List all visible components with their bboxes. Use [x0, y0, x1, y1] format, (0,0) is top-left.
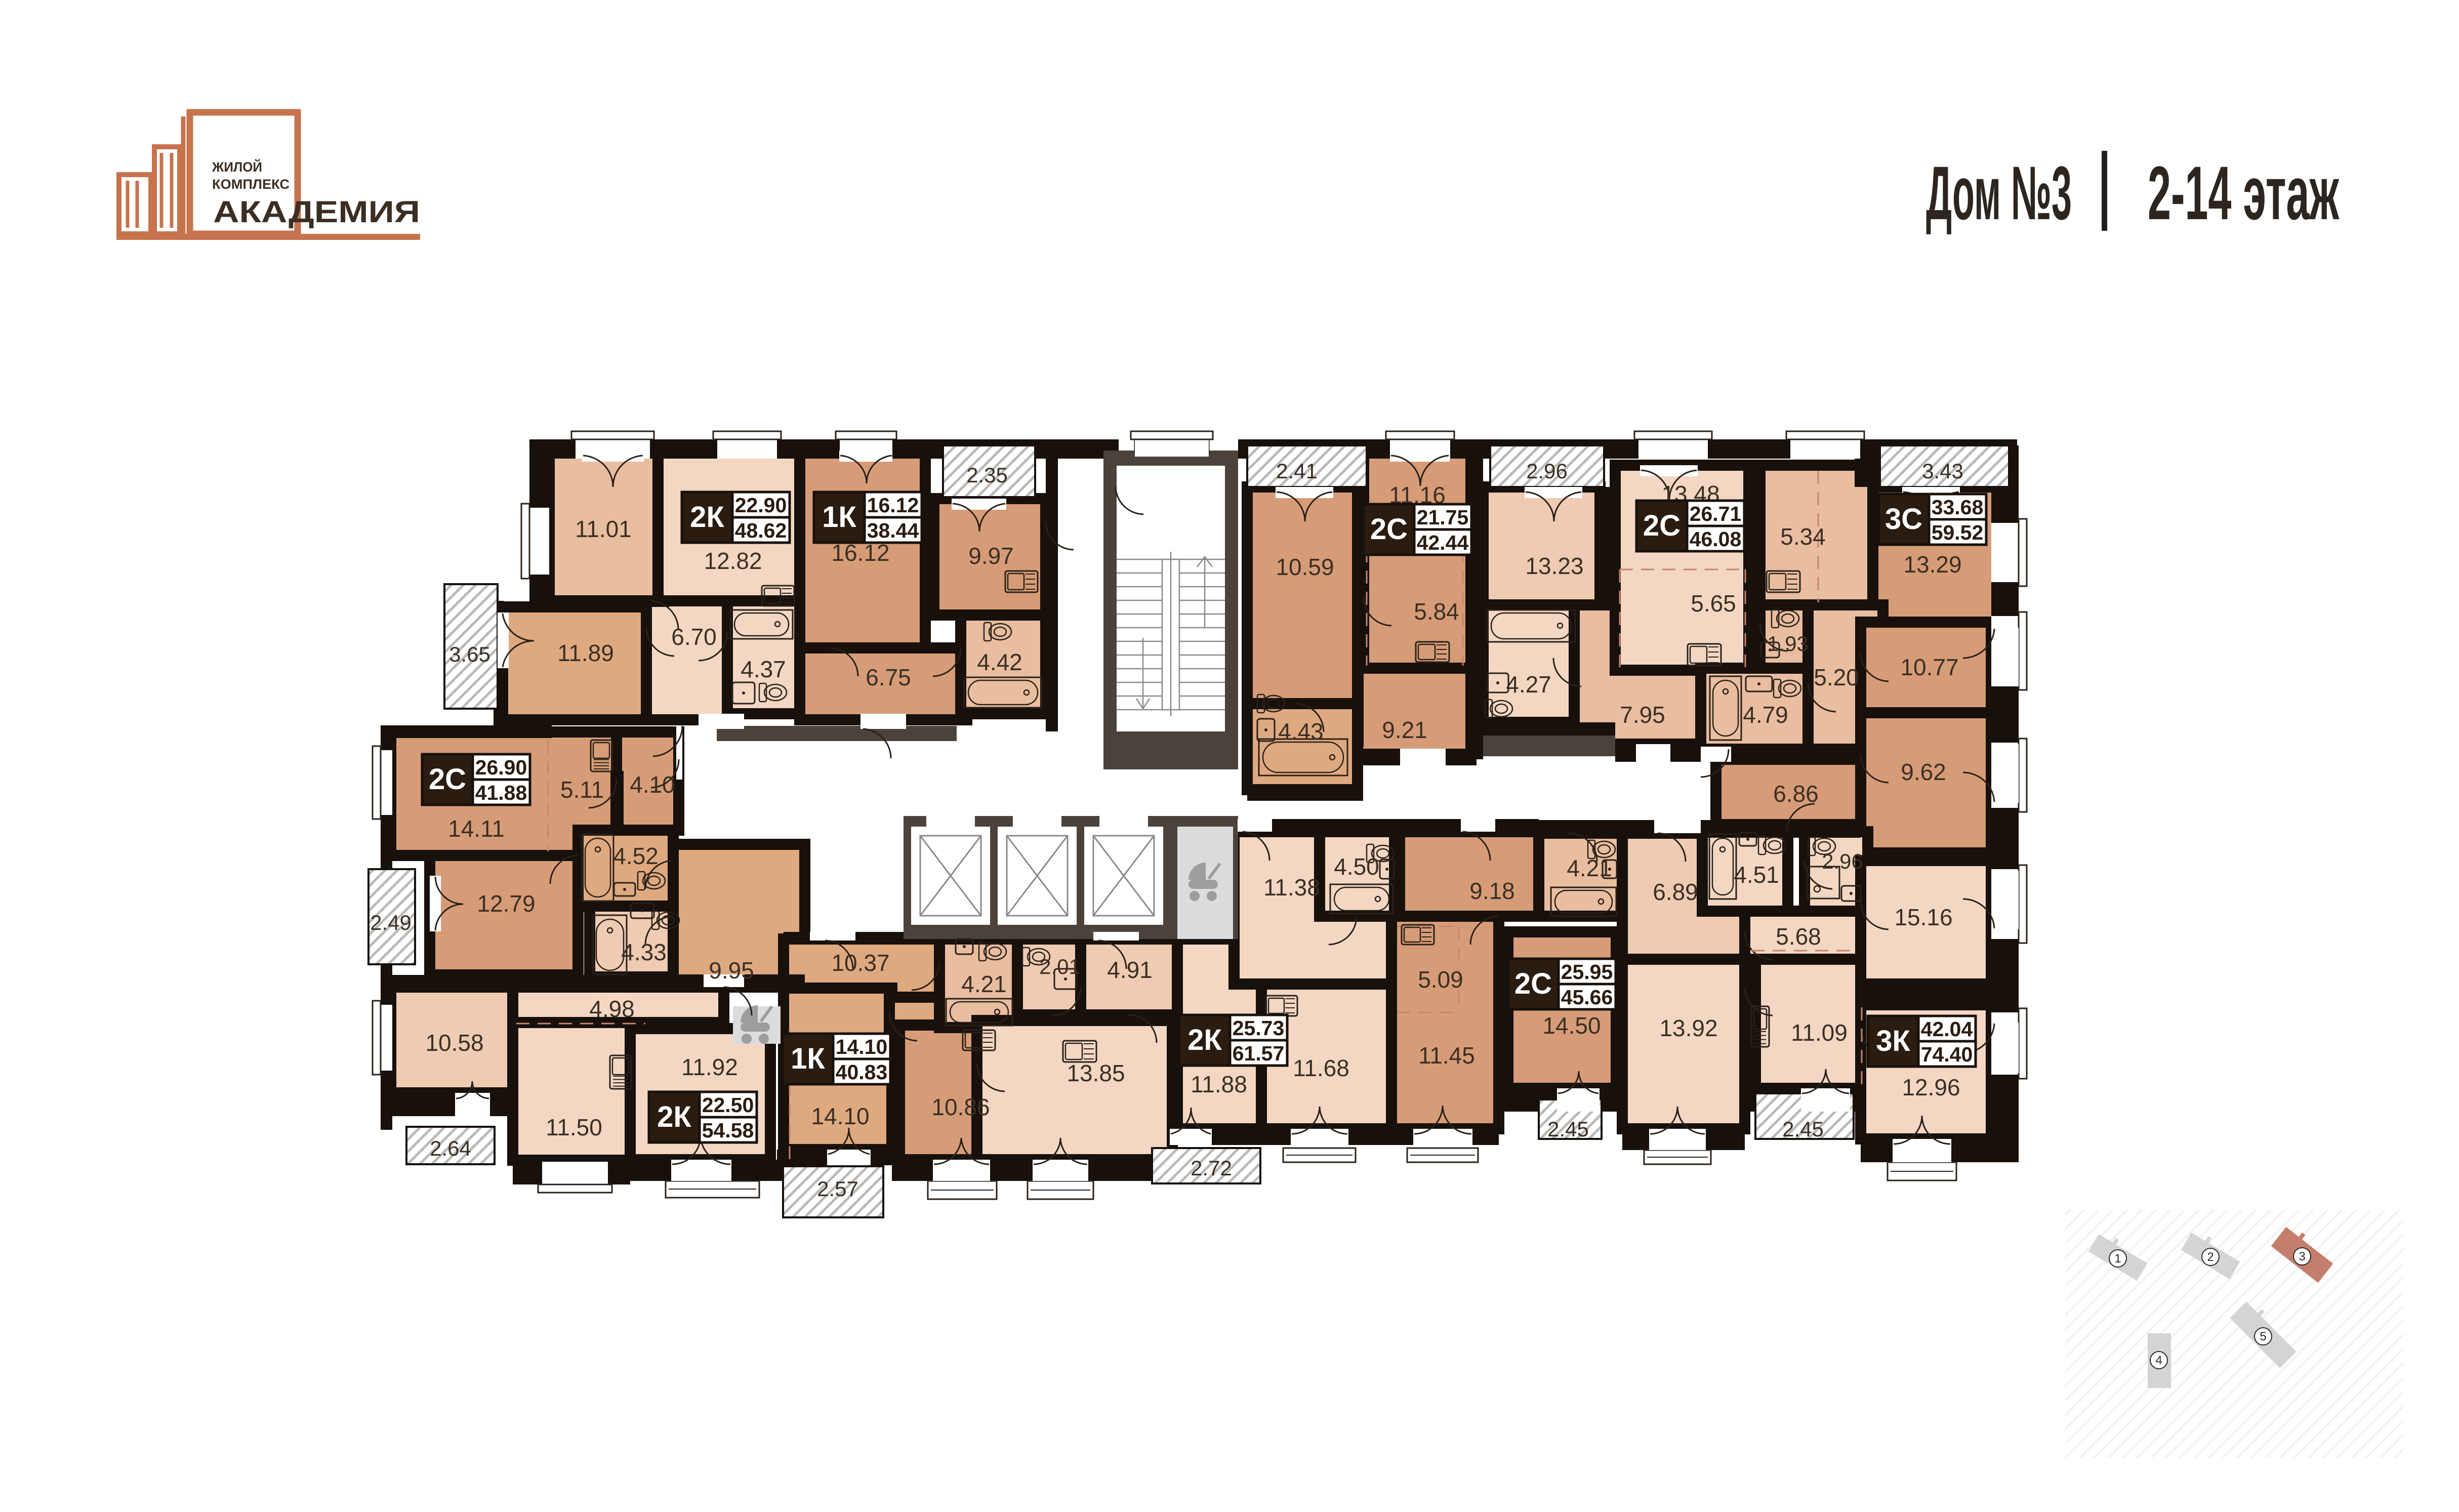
- svg-text:5.34: 5.34: [1780, 523, 1826, 550]
- svg-text:4.27: 4.27: [1506, 671, 1551, 698]
- svg-text:42.04: 42.04: [1921, 1017, 1973, 1041]
- svg-text:10.58: 10.58: [425, 1030, 483, 1056]
- svg-text:2К: 2К: [657, 1100, 691, 1133]
- svg-text:40.83: 40.83: [836, 1060, 888, 1084]
- svg-text:74.40: 74.40: [1921, 1043, 1973, 1066]
- svg-text:21.75: 21.75: [1417, 506, 1469, 529]
- svg-text:11.45: 11.45: [1418, 1042, 1475, 1069]
- svg-text:11.89: 11.89: [557, 640, 614, 666]
- svg-text:46.08: 46.08: [1690, 527, 1742, 551]
- svg-text:11.50: 11.50: [546, 1114, 602, 1140]
- svg-text:54.58: 54.58: [702, 1119, 754, 1142]
- svg-text:2.57: 2.57: [817, 1177, 858, 1201]
- svg-text:5.11: 5.11: [560, 777, 604, 803]
- svg-text:2.72: 2.72: [1191, 1156, 1232, 1180]
- svg-text:2: 2: [2207, 1250, 2214, 1264]
- svg-text:11.88: 11.88: [1191, 1071, 1247, 1097]
- svg-text:12.82: 12.82: [704, 548, 762, 574]
- svg-text:6.70: 6.70: [671, 624, 717, 650]
- svg-text:48.62: 48.62: [735, 519, 787, 542]
- svg-text:13.29: 13.29: [1903, 551, 1961, 578]
- svg-text:2.45: 2.45: [1782, 1117, 1824, 1141]
- svg-text:3К: 3К: [1876, 1025, 1910, 1057]
- svg-text:14.10: 14.10: [811, 1103, 869, 1129]
- svg-text:4.98: 4.98: [589, 996, 635, 1022]
- svg-text:11.38: 11.38: [1263, 874, 1320, 901]
- svg-text:4.10: 4.10: [630, 771, 675, 798]
- svg-text:4.50: 4.50: [1334, 853, 1379, 880]
- svg-text:33.68: 33.68: [1932, 496, 1984, 519]
- svg-text:3С: 3С: [1885, 503, 1922, 536]
- svg-text:2.96: 2.96: [1822, 849, 1863, 873]
- svg-text:26.71: 26.71: [1690, 502, 1742, 525]
- svg-text:12.96: 12.96: [1902, 1074, 1960, 1100]
- svg-text:2.01: 2.01: [1039, 955, 1081, 978]
- svg-text:25.95: 25.95: [1561, 960, 1613, 984]
- svg-text:2К: 2К: [690, 501, 724, 534]
- svg-text:10.77: 10.77: [1900, 654, 1958, 680]
- svg-text:2С: 2С: [1514, 967, 1552, 1000]
- svg-text:22.90: 22.90: [735, 494, 787, 517]
- svg-text:1: 1: [2114, 1252, 2121, 1265]
- svg-text:6.86: 6.86: [1773, 781, 1819, 807]
- svg-text:11.01: 11.01: [575, 516, 632, 542]
- svg-text:5.84: 5.84: [1414, 598, 1459, 625]
- svg-text:5.20: 5.20: [1814, 664, 1859, 690]
- svg-text:6.75: 6.75: [866, 664, 911, 690]
- svg-text:26.90: 26.90: [475, 756, 527, 779]
- svg-text:4.21: 4.21: [1567, 855, 1612, 881]
- svg-text:2.96: 2.96: [1526, 459, 1568, 483]
- svg-text:59.52: 59.52: [1932, 521, 1984, 544]
- svg-text:10.37: 10.37: [831, 950, 889, 976]
- svg-text:2С: 2С: [1370, 513, 1408, 546]
- svg-text:5.65: 5.65: [1691, 590, 1736, 617]
- svg-text:КОМПЛЕКС: КОМПЛЕКС: [212, 177, 290, 192]
- svg-text:2С: 2С: [429, 763, 466, 796]
- svg-text:14.50: 14.50: [1542, 1012, 1601, 1039]
- svg-text:2.35: 2.35: [966, 463, 1008, 487]
- svg-text:11.68: 11.68: [1293, 1055, 1349, 1081]
- svg-text:1К: 1К: [791, 1042, 825, 1075]
- svg-text:9.95: 9.95: [709, 957, 754, 984]
- svg-text:11.09: 11.09: [1791, 1019, 1848, 1046]
- svg-text:4.51: 4.51: [1734, 862, 1779, 888]
- svg-text:12.79: 12.79: [477, 890, 535, 917]
- svg-text:7.95: 7.95: [1620, 702, 1665, 728]
- svg-text:13.92: 13.92: [1659, 1015, 1717, 1041]
- svg-text:ЖИЛОЙ: ЖИЛОЙ: [212, 159, 262, 175]
- svg-text:2.64: 2.64: [430, 1136, 471, 1160]
- svg-text:9.21: 9.21: [1382, 717, 1427, 743]
- svg-text:61.57: 61.57: [1233, 1042, 1285, 1065]
- svg-text:4.21: 4.21: [961, 971, 1007, 997]
- svg-text:41.88: 41.88: [475, 781, 527, 804]
- svg-text:1.93: 1.93: [1767, 632, 1809, 656]
- svg-text:2.49: 2.49: [370, 911, 412, 934]
- svg-text:4.52: 4.52: [613, 843, 659, 869]
- svg-text:9.97: 9.97: [968, 543, 1014, 569]
- svg-text:45.66: 45.66: [1561, 986, 1613, 1009]
- svg-text:5.68: 5.68: [1776, 923, 1821, 950]
- svg-text:1К: 1К: [822, 501, 856, 534]
- svg-text:2.45: 2.45: [1547, 1117, 1589, 1141]
- svg-text:9.62: 9.62: [1901, 759, 1946, 785]
- svg-text:25.73: 25.73: [1233, 1016, 1285, 1040]
- svg-text:16.12: 16.12: [867, 494, 919, 517]
- svg-text:10.86: 10.86: [931, 1094, 990, 1120]
- svg-text:5.09: 5.09: [1418, 966, 1463, 993]
- svg-text:2-14 этаж: 2-14 этаж: [2148, 150, 2340, 235]
- svg-text:11.92: 11.92: [681, 1054, 738, 1080]
- svg-text:2.41: 2.41: [1276, 459, 1318, 483]
- svg-text:42.44: 42.44: [1417, 531, 1469, 554]
- svg-text:2С: 2С: [1643, 509, 1681, 542]
- svg-text:4.33: 4.33: [621, 939, 667, 965]
- svg-text:14.11: 14.11: [448, 815, 505, 842]
- svg-text:9.18: 9.18: [1469, 878, 1515, 904]
- svg-text:15.16: 15.16: [1894, 904, 1952, 930]
- svg-text:2К: 2К: [1187, 1024, 1222, 1056]
- svg-text:АКАДЕМИЯ: АКАДЕМИЯ: [213, 195, 420, 229]
- svg-text:38.44: 38.44: [867, 519, 919, 542]
- svg-text:3.65: 3.65: [449, 642, 490, 666]
- svg-text:22.50: 22.50: [702, 1093, 754, 1117]
- svg-text:4.79: 4.79: [1743, 702, 1788, 728]
- svg-text:4.43: 4.43: [1278, 718, 1324, 745]
- svg-text:10.59: 10.59: [1276, 554, 1334, 580]
- svg-text:4.37: 4.37: [741, 656, 786, 682]
- svg-text:14.10: 14.10: [836, 1035, 888, 1058]
- svg-text:13.23: 13.23: [1525, 553, 1583, 579]
- svg-text:4.91: 4.91: [1107, 957, 1153, 983]
- svg-text:3: 3: [2299, 1250, 2305, 1263]
- svg-text:4: 4: [2155, 1354, 2162, 1367]
- svg-text:13.85: 13.85: [1067, 1060, 1125, 1086]
- svg-text:Дом №3: Дом №3: [1926, 150, 2072, 235]
- svg-text:3.43: 3.43: [1922, 459, 1963, 483]
- svg-text:5: 5: [2260, 1330, 2266, 1343]
- svg-text:6.89: 6.89: [1653, 879, 1698, 905]
- svg-text:4.42: 4.42: [977, 649, 1022, 675]
